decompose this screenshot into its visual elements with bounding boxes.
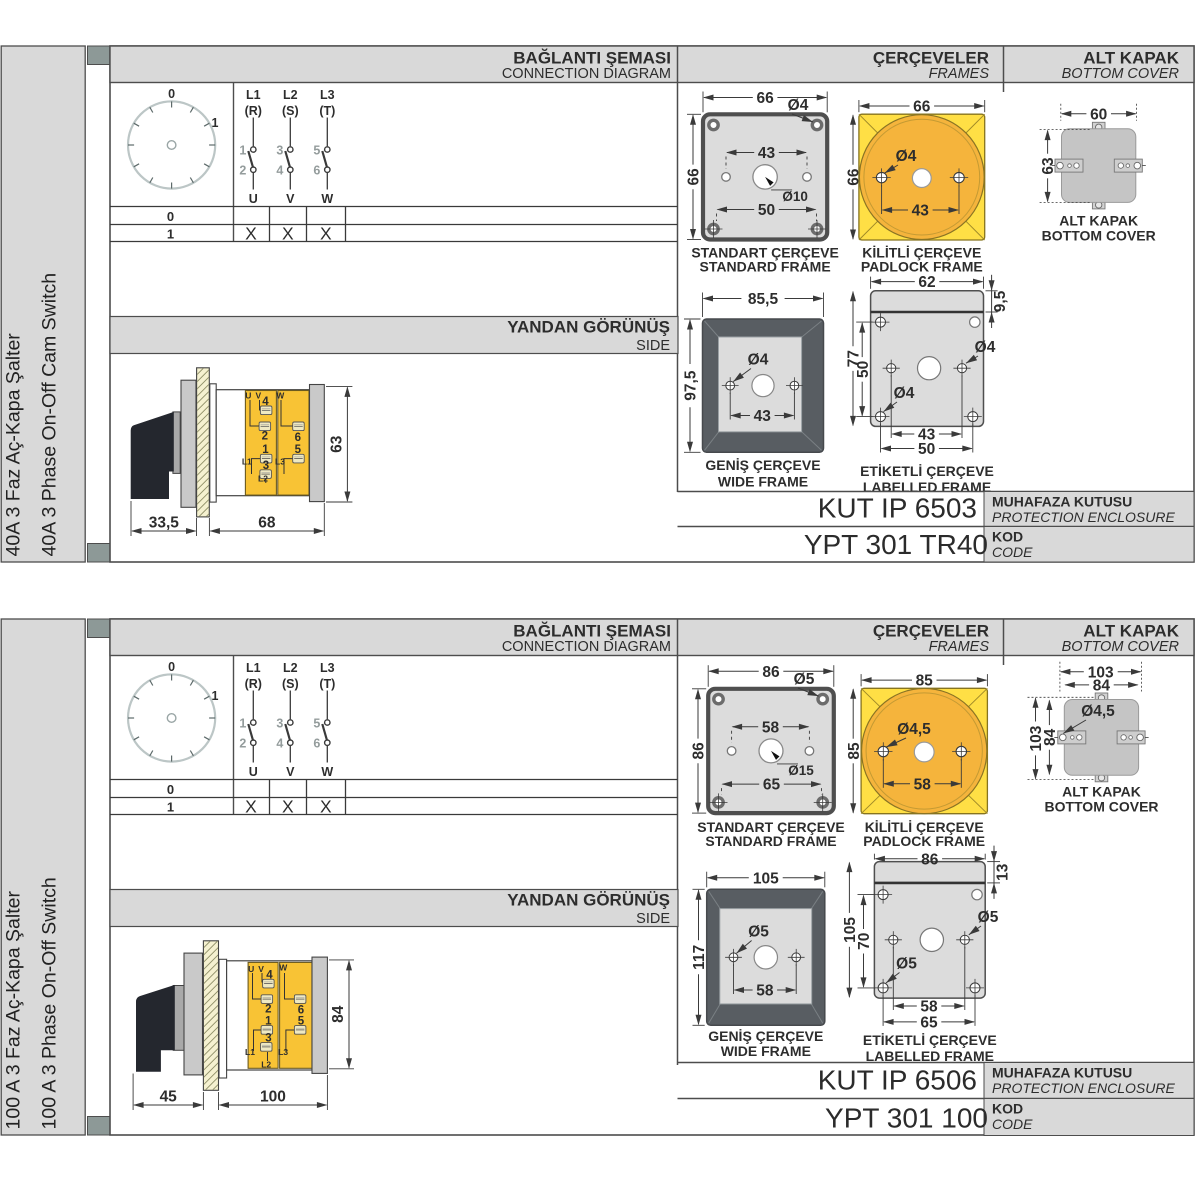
svg-text:ALT KAPAK: ALT KAPAK: [1059, 213, 1138, 229]
svg-text:1: 1: [167, 226, 174, 241]
svg-text:SIDE: SIDE: [636, 911, 670, 927]
svg-text:FRAMES: FRAMES: [929, 66, 990, 82]
svg-text:KUT IP 6506: KUT IP 6506: [818, 1065, 977, 1096]
svg-text:Ø4: Ø4: [788, 97, 809, 114]
svg-text:58: 58: [756, 983, 774, 1000]
svg-text:63: 63: [1040, 157, 1057, 175]
svg-text:Ø4,5: Ø4,5: [1081, 703, 1115, 720]
svg-text:40A 3 Faz Aç-Kapa Şalter: 40A 3 Faz Aç-Kapa Şalter: [3, 333, 25, 557]
svg-text:58: 58: [914, 776, 932, 793]
svg-text:Ø4: Ø4: [975, 339, 996, 356]
svg-text:43: 43: [758, 145, 776, 162]
svg-text:100 A 3 Phase On-Off Switch: 100 A 3 Phase On-Off Switch: [39, 877, 61, 1129]
svg-text:YANDAN GÖRÜNÜŞ: YANDAN GÖRÜNÜŞ: [507, 317, 670, 336]
svg-text:86: 86: [921, 851, 939, 868]
svg-text:45: 45: [160, 1089, 178, 1106]
svg-text:V: V: [258, 964, 264, 974]
svg-text:KOD: KOD: [992, 1101, 1023, 1117]
svg-text:50: 50: [918, 441, 935, 458]
svg-text:62: 62: [918, 274, 935, 291]
svg-text:6: 6: [313, 164, 320, 178]
svg-text:(R): (R): [245, 104, 262, 118]
svg-text:X: X: [245, 224, 257, 244]
svg-text:1: 1: [265, 1016, 272, 1028]
svg-text:4: 4: [276, 737, 283, 751]
svg-text:PADLOCK FRAME: PADLOCK FRAME: [861, 259, 983, 275]
svg-text:L1: L1: [242, 457, 252, 467]
svg-text:BOTTOM COVER: BOTTOM COVER: [1062, 66, 1180, 82]
svg-text:YPT 301 100: YPT 301 100: [825, 1103, 988, 1134]
svg-text:X: X: [320, 224, 332, 244]
svg-text:U: U: [249, 192, 258, 206]
svg-text:U: U: [245, 391, 251, 401]
svg-text:85: 85: [916, 673, 934, 690]
svg-text:66: 66: [756, 90, 774, 107]
svg-text:ALT KAPAK: ALT KAPAK: [1062, 784, 1141, 800]
svg-text:L3: L3: [320, 88, 335, 102]
svg-text:1: 1: [212, 116, 219, 130]
svg-text:BOTTOM COVER: BOTTOM COVER: [1044, 799, 1158, 815]
svg-text:63: 63: [328, 435, 345, 453]
svg-text:(S): (S): [282, 104, 299, 118]
svg-text:66: 66: [913, 99, 931, 116]
svg-text:BAĞLANTI ŞEMASI: BAĞLANTI ŞEMASI: [513, 622, 671, 641]
svg-text:13: 13: [995, 863, 1012, 881]
svg-text:33,5: 33,5: [149, 515, 180, 532]
svg-text:1: 1: [262, 444, 269, 456]
svg-text:L3: L3: [278, 1047, 288, 1057]
svg-text:58: 58: [920, 999, 938, 1016]
svg-text:X: X: [282, 797, 294, 817]
svg-text:Ø10: Ø10: [782, 189, 808, 204]
svg-text:GENİŞ ÇERÇEVE: GENİŞ ÇERÇEVE: [708, 1028, 823, 1044]
svg-text:L1: L1: [245, 1047, 255, 1057]
svg-text:L3: L3: [320, 661, 335, 675]
svg-text:(R): (R): [245, 677, 262, 691]
svg-text:PROTECTION ENCLOSURE: PROTECTION ENCLOSURE: [992, 1080, 1175, 1096]
svg-text:Ø15: Ø15: [788, 763, 814, 778]
svg-text:1: 1: [167, 799, 174, 814]
svg-text:PROTECTION ENCLOSURE: PROTECTION ENCLOSURE: [992, 509, 1175, 525]
svg-text:FRAMES: FRAMES: [929, 639, 990, 655]
svg-text:BOTTOM COVER: BOTTOM COVER: [1062, 639, 1180, 655]
svg-text:BAĞLANTI ŞEMASI: BAĞLANTI ŞEMASI: [513, 49, 671, 68]
svg-text:W: W: [321, 765, 333, 779]
svg-text:60: 60: [1090, 106, 1107, 123]
svg-text:1: 1: [239, 144, 246, 158]
svg-text:Ø4: Ø4: [896, 148, 917, 165]
svg-text:1: 1: [239, 717, 246, 731]
svg-text:0: 0: [168, 660, 175, 674]
svg-text:68: 68: [258, 515, 276, 532]
svg-text:5: 5: [295, 444, 302, 456]
svg-text:4: 4: [276, 164, 283, 178]
svg-text:84: 84: [1042, 728, 1059, 746]
svg-text:L1: L1: [246, 661, 261, 675]
svg-text:3: 3: [265, 1033, 271, 1045]
svg-text:84: 84: [330, 1005, 347, 1023]
svg-text:0: 0: [168, 87, 175, 101]
svg-text:1: 1: [212, 689, 219, 703]
svg-text:9,5: 9,5: [992, 290, 1009, 312]
svg-text:BOTTOM COVER: BOTTOM COVER: [1042, 228, 1156, 244]
svg-text:0: 0: [167, 782, 174, 797]
svg-text:CONNECTION DIAGRAM: CONNECTION DIAGRAM: [502, 639, 671, 655]
svg-text:50: 50: [855, 361, 872, 378]
svg-text:85: 85: [846, 742, 863, 760]
svg-text:5: 5: [313, 144, 320, 158]
svg-text:6: 6: [313, 737, 320, 751]
svg-text:5: 5: [298, 1016, 305, 1028]
svg-text:X: X: [245, 797, 257, 817]
svg-text:X: X: [282, 224, 294, 244]
svg-text:86: 86: [691, 742, 708, 760]
svg-text:43: 43: [754, 408, 772, 425]
svg-text:50: 50: [758, 202, 775, 219]
svg-text:40A 3 Phase On-Off Cam Switch: 40A 3 Phase On-Off Cam Switch: [39, 273, 61, 557]
svg-text:STANDARD FRAME: STANDARD FRAME: [700, 259, 831, 275]
svg-text:W: W: [276, 391, 285, 401]
svg-text:117: 117: [691, 945, 708, 970]
svg-text:66: 66: [686, 168, 703, 186]
svg-text:86: 86: [762, 664, 780, 681]
svg-text:X: X: [320, 797, 332, 817]
svg-text:W: W: [321, 192, 333, 206]
svg-text:ÇERÇEVELER: ÇERÇEVELER: [873, 622, 989, 641]
svg-text:58: 58: [762, 719, 780, 736]
svg-text:YPT 301 TR40: YPT 301 TR40: [804, 529, 988, 560]
svg-text:97,5: 97,5: [683, 370, 700, 401]
svg-text:MUHAFAZA KUTUSU: MUHAFAZA KUTUSU: [992, 494, 1132, 510]
svg-text:65: 65: [920, 1015, 938, 1032]
svg-text:V: V: [286, 765, 295, 779]
svg-text:2: 2: [262, 431, 268, 443]
svg-text:3: 3: [276, 717, 283, 731]
svg-text:105: 105: [753, 870, 779, 887]
svg-text:MUHAFAZA KUTUSU: MUHAFAZA KUTUSU: [992, 1065, 1132, 1081]
svg-text:(T): (T): [319, 104, 335, 118]
svg-text:LABELLED FRAME: LABELLED FRAME: [866, 1048, 994, 1064]
svg-text:(T): (T): [319, 677, 335, 691]
svg-text:Ø5: Ø5: [748, 924, 769, 941]
svg-text:ETİKETLİ ÇERÇEVE: ETİKETLİ ÇERÇEVE: [860, 463, 994, 479]
svg-text:2: 2: [239, 164, 246, 178]
svg-text:5: 5: [313, 717, 320, 731]
svg-text:CONNECTION DIAGRAM: CONNECTION DIAGRAM: [502, 66, 671, 82]
svg-text:Ø4,5: Ø4,5: [897, 721, 931, 738]
svg-text:100: 100: [260, 1089, 286, 1106]
svg-text:ALT KAPAK: ALT KAPAK: [1083, 622, 1179, 641]
svg-text:85,5: 85,5: [748, 291, 779, 308]
svg-text:Ø4: Ø4: [748, 352, 769, 369]
svg-text:84: 84: [1093, 678, 1111, 695]
svg-text:ALT KAPAK: ALT KAPAK: [1083, 49, 1179, 68]
svg-text:PADLOCK FRAME: PADLOCK FRAME: [863, 833, 985, 849]
svg-text:Ø5: Ø5: [896, 956, 917, 973]
svg-text:L2: L2: [283, 88, 298, 102]
svg-text:WIDE FRAME: WIDE FRAME: [721, 1043, 811, 1059]
svg-text:U: U: [249, 765, 258, 779]
svg-text:U: U: [248, 964, 254, 974]
svg-text:ÇERÇEVELER: ÇERÇEVELER: [873, 49, 989, 68]
svg-text:YANDAN GÖRÜNÜŞ: YANDAN GÖRÜNÜŞ: [507, 890, 670, 909]
svg-text:70: 70: [856, 933, 873, 950]
svg-text:2: 2: [265, 1003, 271, 1015]
svg-text:L2: L2: [258, 474, 268, 484]
svg-text:CODE: CODE: [992, 544, 1033, 560]
svg-text:(S): (S): [282, 677, 299, 691]
svg-text:43: 43: [912, 203, 930, 220]
svg-text:L2: L2: [261, 1059, 271, 1069]
svg-text:3: 3: [276, 144, 283, 158]
svg-text:4: 4: [262, 396, 269, 408]
svg-text:KOD: KOD: [992, 529, 1023, 545]
svg-text:100 A 3 Faz Aç-Kapa Şalter: 100 A 3 Faz Aç-Kapa Şalter: [3, 891, 25, 1130]
svg-text:3: 3: [263, 460, 269, 472]
svg-text:STANDARD FRAME: STANDARD FRAME: [705, 833, 836, 849]
svg-text:66: 66: [846, 168, 863, 186]
svg-text:GENİŞ ÇERÇEVE: GENİŞ ÇERÇEVE: [705, 457, 820, 473]
svg-text:L2: L2: [283, 661, 298, 675]
svg-text:0: 0: [167, 209, 174, 224]
svg-text:V: V: [286, 192, 295, 206]
svg-text:ETİKETLİ ÇERÇEVE: ETİKETLİ ÇERÇEVE: [863, 1032, 997, 1048]
svg-text:Ø5: Ø5: [978, 909, 999, 926]
svg-text:Ø4: Ø4: [894, 385, 915, 402]
svg-text:L3: L3: [275, 457, 285, 467]
svg-text:6: 6: [295, 432, 301, 444]
svg-text:Ø5: Ø5: [794, 671, 815, 688]
svg-text:KUT IP 6503: KUT IP 6503: [818, 493, 977, 524]
svg-text:W: W: [279, 962, 288, 972]
svg-text:L1: L1: [246, 88, 261, 102]
svg-text:CODE: CODE: [992, 1116, 1033, 1132]
svg-text:2: 2: [239, 737, 246, 751]
svg-text:V: V: [255, 391, 261, 401]
svg-text:SIDE: SIDE: [636, 338, 670, 354]
svg-text:WIDE FRAME: WIDE FRAME: [718, 474, 808, 490]
svg-text:4: 4: [266, 969, 273, 981]
svg-text:65: 65: [763, 777, 781, 794]
